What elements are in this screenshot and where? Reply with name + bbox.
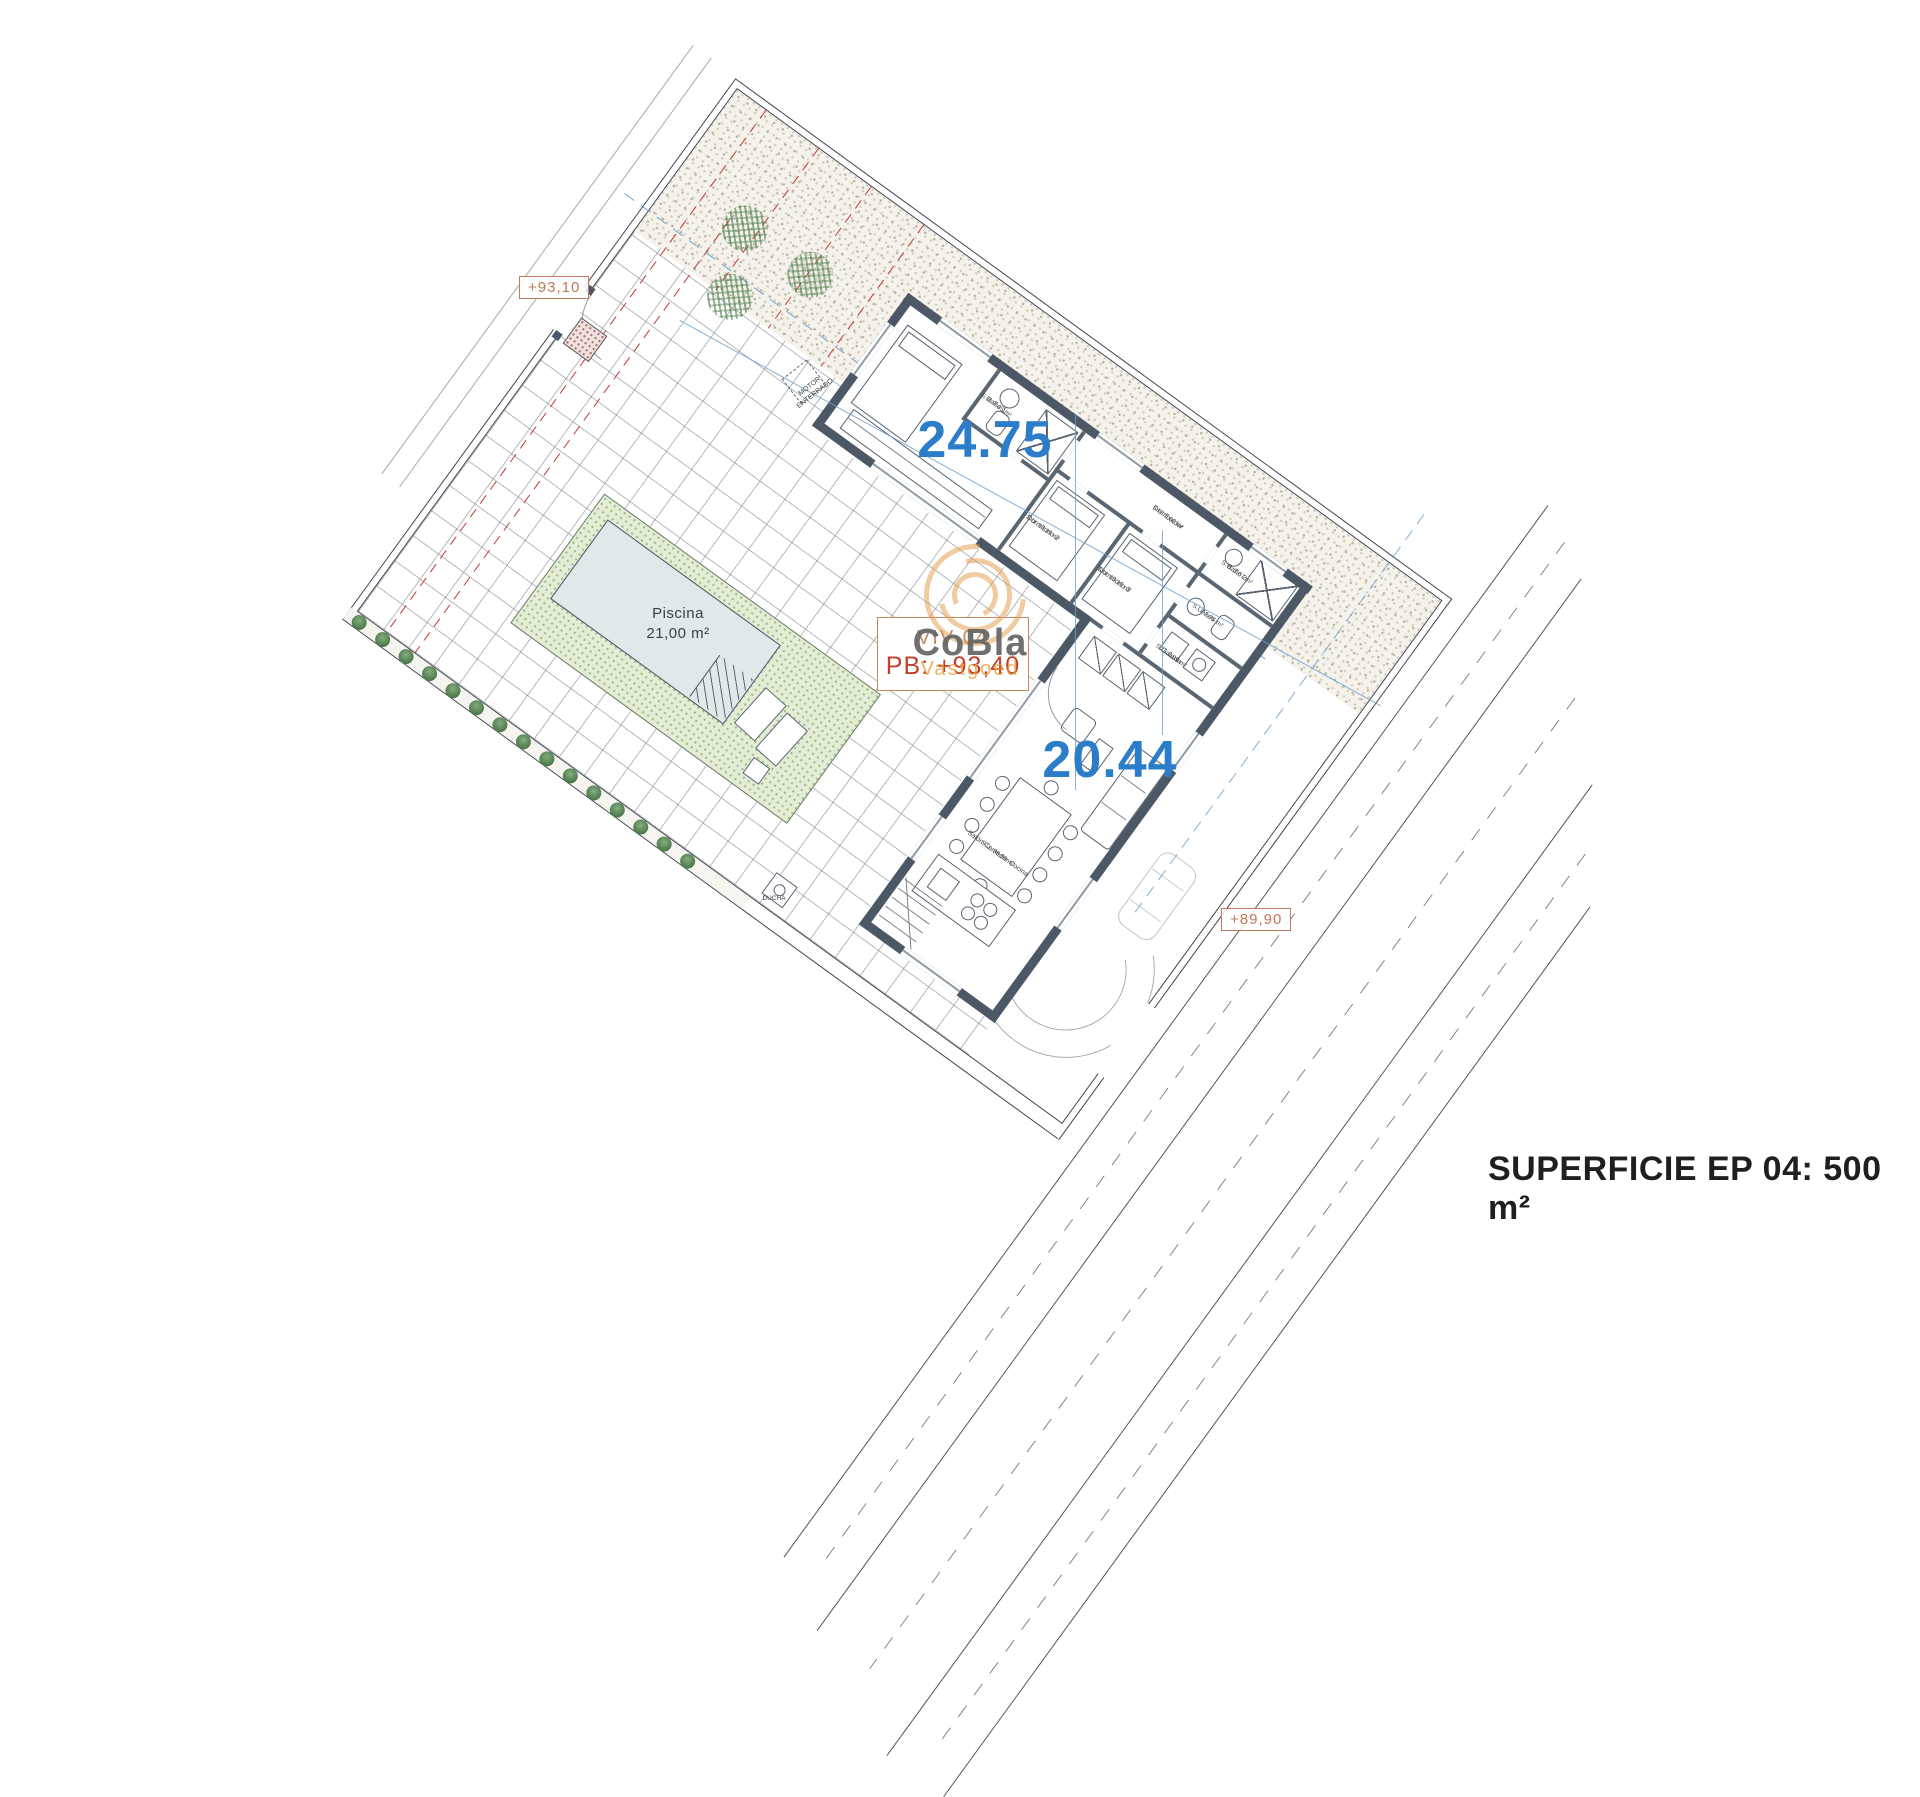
elevation-marker-road: +89,90: [1221, 908, 1291, 931]
villa-id-label: VIV 04: [917, 627, 989, 650]
boundary-outer-line: [342, 78, 1452, 1140]
pool-area: 21,00 m²: [598, 624, 758, 644]
ducha-label: DUCHA: [752, 895, 796, 902]
pool-name: Piscina: [598, 604, 758, 624]
pool-label: Piscina 21,00 m²: [598, 604, 758, 643]
area-figure-south: 20.44: [1025, 730, 1195, 790]
plot-boundary: Baño 1S.U: 3,45 m² DistribuidorS.U: 5,60…: [357, 88, 1443, 1124]
elevation-marker-upper: +93,10: [519, 276, 589, 299]
superficie-text: SUPERFICIE EP 04: 500 m²: [1488, 1150, 1920, 1228]
villa-floor-level: PB: +93,40: [886, 652, 1020, 681]
site-plan-page: { "areas": { "north": "24.75", "south": …: [0, 0, 1920, 1280]
area-figure-north: 24.75: [900, 410, 1070, 470]
dimension-line-blue: [1162, 530, 1163, 735]
villa-id-box: VIV 04 PB: +93,40: [877, 617, 1029, 691]
